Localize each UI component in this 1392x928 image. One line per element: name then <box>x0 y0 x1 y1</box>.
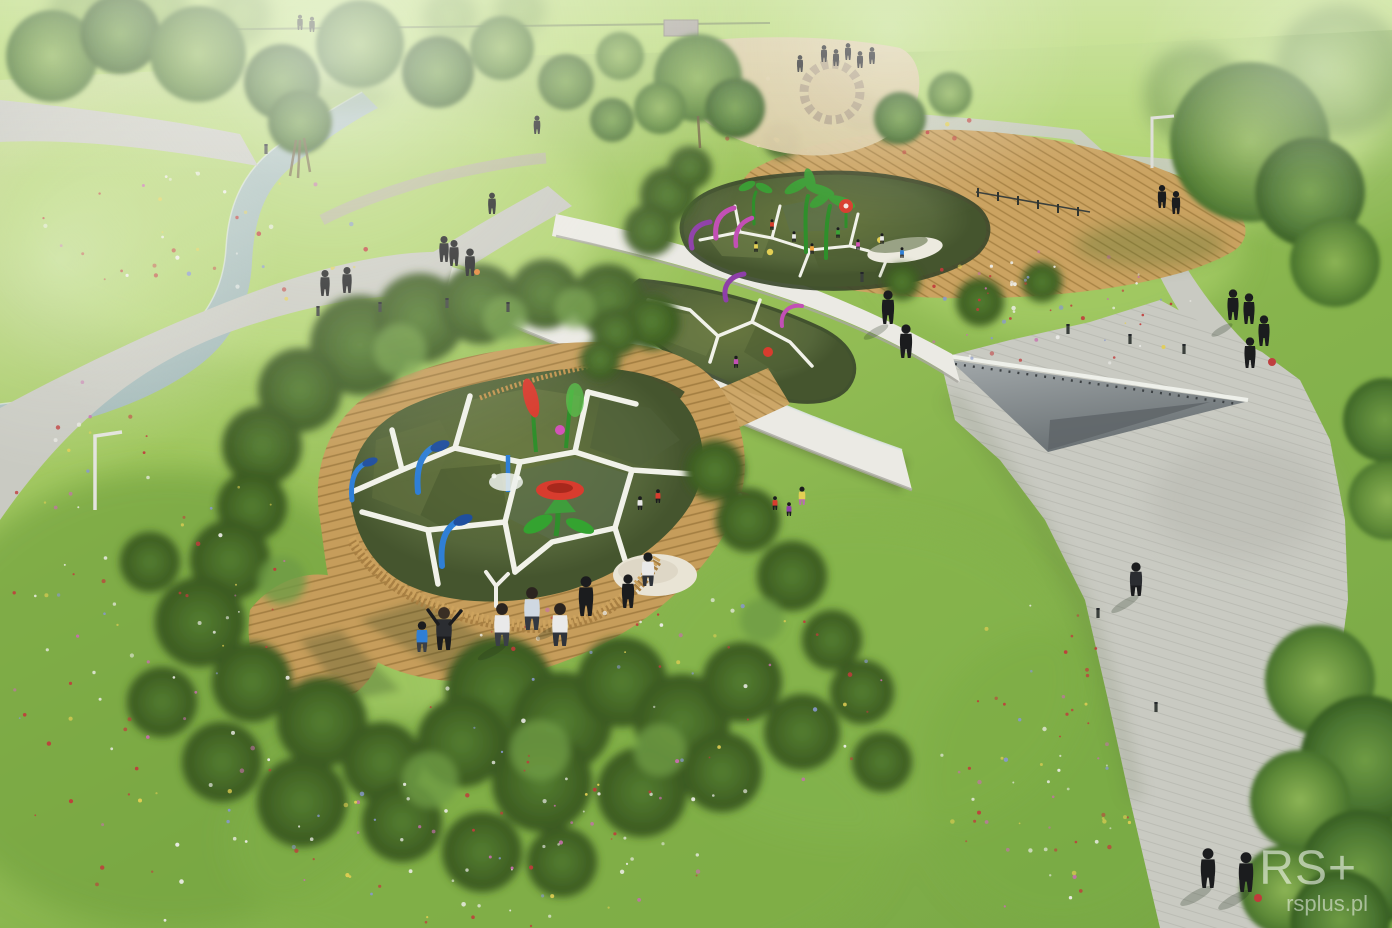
flower-speckle <box>1142 314 1145 317</box>
flower-speckle <box>151 871 153 873</box>
flower-speckle <box>1109 827 1111 829</box>
flower-speckle <box>1123 815 1127 819</box>
flower-speckle <box>1128 821 1131 824</box>
rendering-scene: RS+ rsplus.pl <box>0 0 1392 928</box>
flower-speckle <box>173 676 176 679</box>
flower-speckle <box>1135 282 1138 285</box>
flower-speckle <box>803 620 806 623</box>
flower-speckle <box>228 789 232 793</box>
flower-speckle <box>374 819 376 821</box>
flower-speckle <box>1028 848 1032 852</box>
flower-speckle <box>1004 905 1006 907</box>
flower-speckle <box>661 842 664 845</box>
flower-speckle <box>179 879 184 884</box>
flower-speckle <box>313 858 315 860</box>
flower-speckle <box>1160 299 1162 301</box>
flower-speckle <box>472 829 475 832</box>
flower-speckle <box>452 879 455 882</box>
flower-speckle <box>270 504 272 506</box>
flower-speckle <box>1013 310 1016 313</box>
flower-speckle <box>216 672 218 674</box>
flower-speckle <box>542 845 545 848</box>
flower-speckle <box>1019 823 1021 825</box>
flower-speckle <box>532 678 535 681</box>
flower-speckle <box>147 660 150 663</box>
flower-speckle <box>113 602 116 605</box>
flower-speckle <box>691 797 695 801</box>
flower-speckle <box>880 679 882 681</box>
flower-speckle <box>130 653 134 657</box>
flower-speckle <box>100 865 104 869</box>
flower-speckle <box>713 634 716 637</box>
flower-speckle <box>146 476 150 480</box>
flower-speckle <box>349 875 352 878</box>
flower-speckle <box>317 815 320 818</box>
flower-speckle <box>196 542 201 547</box>
flower-speckle <box>958 265 962 269</box>
flower-speckle <box>265 646 267 648</box>
flower-speckle <box>611 838 613 840</box>
flower-speckle <box>1062 695 1065 698</box>
flower-speckle <box>970 357 973 360</box>
flower-speckle <box>1030 670 1033 673</box>
flower-speckle <box>235 584 237 586</box>
flower-speckle <box>977 700 979 702</box>
watermark-brand: RS+ <box>1259 842 1357 895</box>
flower-speckle <box>19 717 21 719</box>
flower-speckle <box>228 809 231 812</box>
flower-speckle <box>286 676 290 680</box>
flower-speckle <box>128 793 130 795</box>
flower-speckle <box>267 758 270 761</box>
flower-speckle <box>238 611 240 613</box>
flower-speckle <box>116 624 118 626</box>
flower-speckle <box>659 665 662 668</box>
flower-speckle <box>1102 819 1106 823</box>
flower-speckle <box>1073 875 1077 879</box>
flower-speckle <box>747 719 749 721</box>
flower-speckle <box>527 761 530 764</box>
flower-speckle <box>1097 757 1099 759</box>
flower-speckle <box>477 904 480 907</box>
flower-speckle <box>409 869 413 873</box>
flower-speckle <box>978 299 981 302</box>
flower-speckle <box>1040 763 1043 766</box>
flower-speckle <box>175 843 179 847</box>
flower-speckle <box>492 761 496 765</box>
flower-speckle <box>1054 848 1057 851</box>
flower-speckle <box>990 351 994 355</box>
flower-speckle <box>529 865 533 869</box>
flower-speckle <box>185 594 188 597</box>
flower-speckle <box>146 735 150 739</box>
flower-speckle <box>1064 650 1068 654</box>
flower-speckle <box>675 759 679 763</box>
flower-speckle <box>1139 345 1141 347</box>
handbag <box>1254 894 1262 902</box>
flower-speckle <box>489 856 492 859</box>
flower-speckle <box>44 593 48 597</box>
flower-speckle <box>730 609 734 613</box>
flower-speckle <box>1057 769 1060 772</box>
flower-speckle <box>613 832 616 835</box>
flower-speckle <box>357 831 360 834</box>
flower-speckle <box>932 340 935 343</box>
flower-speckle <box>1104 339 1106 341</box>
flower-speckle <box>511 867 514 870</box>
flower-speckle <box>1085 703 1088 706</box>
flower-speckle <box>183 516 186 519</box>
flower-speckle <box>1069 896 1072 899</box>
flower-speckle <box>77 506 79 508</box>
flower-speckle <box>23 713 27 717</box>
flower-speckle <box>950 819 955 824</box>
flower-speckle <box>784 620 786 622</box>
flower-speckle <box>1072 871 1077 876</box>
flower-speckle <box>1034 338 1038 342</box>
flower-speckle <box>991 337 993 339</box>
flower-speckle <box>34 595 37 598</box>
flower-speckle <box>1059 736 1061 738</box>
flower-speckle <box>978 272 981 275</box>
flower-speckle <box>603 611 607 615</box>
flower-speckle <box>1087 722 1089 724</box>
flower-speckle <box>1139 323 1141 325</box>
flower-speckle <box>1189 300 1191 302</box>
flower-speckle <box>54 506 58 510</box>
flower-speckle <box>310 837 314 841</box>
flower-speckle <box>1071 709 1074 712</box>
flower-speckle <box>231 731 235 735</box>
flower-speckle <box>104 556 108 560</box>
flower-speckle <box>550 894 554 898</box>
flower-speckle <box>430 706 432 708</box>
flower-speckle <box>509 910 511 912</box>
flower-speckle <box>1122 290 1124 292</box>
flower-speckle <box>1053 266 1055 268</box>
flower-speckle <box>210 507 213 510</box>
flower-speckle <box>985 627 989 631</box>
flower-speckle <box>570 821 573 824</box>
flower-speckle <box>57 593 60 596</box>
flower-speckle <box>1170 303 1173 306</box>
flower-speckle <box>965 840 967 842</box>
red-jet <box>763 347 773 357</box>
flower-speckle <box>1056 335 1060 339</box>
flower-speckle <box>590 822 594 826</box>
flower-speckle <box>1113 356 1116 359</box>
flower-speckle <box>15 491 18 494</box>
flower-speckle <box>966 334 968 336</box>
flower-speckle <box>1029 605 1031 607</box>
flower-speckle <box>360 792 365 797</box>
flower-speckle <box>548 915 551 918</box>
tree-shadow <box>1075 223 1225 267</box>
flower-speckle <box>524 770 526 772</box>
flower-speckle <box>407 797 410 800</box>
flower-speckle <box>968 767 971 770</box>
flower-speckle <box>608 907 610 909</box>
flower-speckle <box>653 706 655 708</box>
flower-speckle <box>1011 306 1015 310</box>
flower-speckle <box>1070 305 1072 307</box>
flower-speckle <box>445 686 449 690</box>
handbag <box>1268 358 1276 366</box>
flower-speckle <box>1095 840 1099 844</box>
flower-speckle <box>69 717 73 721</box>
flower-speckle <box>1162 345 1166 349</box>
flower-speckle <box>583 811 585 813</box>
flower-speckle <box>240 768 245 773</box>
flower-speckle <box>1108 361 1111 364</box>
flower-speckle <box>589 651 592 654</box>
flower-speckle <box>1037 250 1040 253</box>
flower-speckle <box>294 849 298 853</box>
flower-speckle <box>864 660 868 664</box>
flower-speckle <box>741 604 745 608</box>
flower-speckle <box>744 684 748 688</box>
flower-speckle <box>1001 757 1004 760</box>
flower-speckle <box>995 697 998 700</box>
flower-speckle <box>465 793 469 797</box>
flower-speckle <box>989 275 991 277</box>
flower-speckle <box>222 645 224 647</box>
flower-speckle <box>103 612 106 615</box>
flower-speckle <box>473 727 475 729</box>
flower-speckle <box>344 803 349 808</box>
flower-speckle <box>969 355 971 357</box>
flower-speckle <box>657 613 659 615</box>
flower-speckle <box>110 747 113 750</box>
flower-speckle <box>303 879 305 881</box>
flower-speckle <box>92 671 95 674</box>
flower-speckle <box>844 745 847 748</box>
flower-speckle <box>1094 647 1097 650</box>
flower-speckle <box>1067 788 1070 791</box>
flower-speckle <box>709 757 711 759</box>
flower-speckle <box>769 664 772 667</box>
flower-speckle <box>95 883 99 887</box>
flower-speckle <box>64 564 66 566</box>
flower-speckle <box>1003 703 1006 706</box>
flower-speckle <box>370 893 373 896</box>
flower-speckle <box>47 741 51 745</box>
flower-speckle <box>1024 282 1027 285</box>
flower-speckle <box>554 805 556 807</box>
flower-speckle <box>1085 668 1089 672</box>
flower-speckle <box>1009 317 1012 320</box>
flower-speckle <box>354 801 357 804</box>
flower-speckle <box>292 845 296 849</box>
flower-speckle <box>712 794 715 797</box>
flower-speckle <box>1052 796 1055 799</box>
flower-speckle <box>1059 755 1061 757</box>
flower-speckle <box>273 568 276 571</box>
flower-speckle <box>717 745 721 749</box>
flower-speckle <box>543 799 547 803</box>
flower-speckle <box>585 793 588 796</box>
flower-speckle <box>1012 782 1014 784</box>
flower-speckle <box>816 633 819 636</box>
flower-speckle <box>866 711 868 713</box>
flower-speckle <box>1102 817 1105 820</box>
flower-speckle <box>179 592 182 595</box>
flower-speckle <box>597 792 600 795</box>
flower-speckle <box>1079 889 1083 893</box>
plaza-shade-patch <box>1150 440 1330 560</box>
flower-speckle <box>630 857 634 861</box>
flower-speckle <box>13 591 16 594</box>
flower-speckle <box>985 820 989 824</box>
flower-speckle <box>623 837 626 840</box>
flower-speckle <box>1127 816 1129 818</box>
flower-speckle <box>237 486 240 489</box>
park-rendering: RS+ rsplus.pl <box>0 0 1392 928</box>
flower-speckle <box>597 784 599 786</box>
flower-speckle <box>1013 282 1017 286</box>
flower-speckle <box>676 660 680 664</box>
flower-speckle <box>99 698 102 701</box>
flower-speckle <box>1002 320 1006 324</box>
flower-speckle <box>1019 359 1022 362</box>
flower-speckle <box>1125 322 1127 324</box>
flower-speckle <box>426 916 428 918</box>
flower-speckle <box>1075 841 1078 844</box>
flower-speckle <box>444 809 448 813</box>
flower-speckle <box>128 717 132 721</box>
flower-speckle <box>183 717 186 720</box>
flower-speckle <box>269 769 272 772</box>
flower-speckle <box>971 798 974 801</box>
flower-speckle <box>1105 767 1108 770</box>
flower-speckle <box>943 297 947 301</box>
flower-speckle <box>711 598 715 602</box>
yellow-jet <box>767 249 773 255</box>
flower-speckle <box>1047 780 1050 783</box>
flower-speckle <box>69 682 72 685</box>
flower-speckle <box>226 616 229 619</box>
flower-speckle <box>990 265 993 268</box>
flower-speckle <box>692 672 694 674</box>
flower-speckle <box>1010 281 1014 285</box>
flower-speckle <box>1101 813 1105 817</box>
flower-speckle <box>272 609 274 611</box>
flower-speckle <box>940 268 944 272</box>
flower-speckle <box>1107 845 1111 849</box>
flower-speckle <box>696 869 700 873</box>
flower-speckle <box>843 703 847 707</box>
flower-speckle <box>977 811 981 815</box>
flower-speckle <box>976 308 979 311</box>
flower-speckle <box>155 792 157 794</box>
flower-speckle <box>13 688 16 691</box>
flower-speckle <box>659 797 662 800</box>
flower-speckle <box>639 621 642 624</box>
flower-speckle <box>987 292 989 294</box>
flower-speckle <box>660 623 664 627</box>
flower-speckle <box>233 837 237 841</box>
flower-speckle <box>1004 758 1008 762</box>
flower-speckle <box>44 501 46 503</box>
flower-speckle <box>181 523 184 526</box>
flower-speckle <box>69 492 73 496</box>
flower-speckle <box>499 857 501 859</box>
flower-speckle <box>1105 742 1109 746</box>
flower-speckle <box>250 746 255 751</box>
flower-speckle <box>164 919 167 922</box>
flower-speckle <box>1071 635 1074 638</box>
flower-speckle <box>1048 826 1050 828</box>
flower-speckle <box>234 595 236 597</box>
flower-speckle <box>403 783 406 786</box>
flower-speckle <box>209 783 213 787</box>
flower-speckle <box>123 728 127 732</box>
flower-speckle <box>1138 276 1140 278</box>
flower-speckle <box>46 648 49 651</box>
flower-speckle <box>73 573 75 575</box>
flower-speckle <box>432 830 436 834</box>
flower-speckle <box>626 863 628 865</box>
flower-speckle <box>593 788 597 792</box>
flower-speckle <box>69 799 73 803</box>
flower-speckle <box>1081 316 1085 320</box>
flower-speckle <box>76 635 79 638</box>
flower-speckle <box>977 780 981 784</box>
flower-speckle <box>636 623 639 626</box>
flower-speckle <box>1024 279 1027 282</box>
flower-speckle <box>480 634 483 637</box>
flower-speckle <box>973 820 976 823</box>
flower-speckle <box>649 791 652 794</box>
flower-speckle <box>471 915 475 919</box>
flower-speckle <box>1138 273 1140 275</box>
flower-speckle <box>624 651 626 653</box>
flower-speckle <box>135 767 139 771</box>
flower-speckle <box>743 789 747 793</box>
flower-speckle <box>637 898 641 902</box>
flower-speckle <box>1006 848 1010 852</box>
flower-speckle <box>813 707 817 711</box>
flower-speckle <box>226 820 229 823</box>
flower-speckle <box>679 633 683 637</box>
flower-speckle <box>696 853 699 856</box>
watermark-website: rsplus.pl <box>1286 891 1368 916</box>
flower-speckle <box>1049 874 1051 876</box>
flower-speckle <box>213 631 216 634</box>
flower-speckle <box>545 608 550 613</box>
flower-speckle <box>138 799 142 803</box>
flower-speckle <box>985 287 987 289</box>
flower-speckle <box>557 843 560 846</box>
flower-speckle <box>565 778 568 781</box>
flower-speckle <box>461 902 466 907</box>
flower-speckle <box>102 579 106 583</box>
flower-speckle <box>1059 305 1064 310</box>
flower-speckle <box>418 825 421 828</box>
flower-speckle <box>1106 765 1108 767</box>
flower-speckle <box>1086 674 1089 677</box>
flower-speckle <box>932 285 935 288</box>
flower-speckle <box>283 560 285 562</box>
flower-speckle <box>400 838 403 841</box>
flower-speckle <box>530 925 532 927</box>
flower-speckle <box>680 758 684 762</box>
flower-speckle <box>1018 718 1021 721</box>
flower-speckle <box>1077 614 1080 617</box>
flower-speckle <box>802 778 806 782</box>
flower-speckle <box>848 672 853 677</box>
flower-speckle <box>1010 261 1013 264</box>
